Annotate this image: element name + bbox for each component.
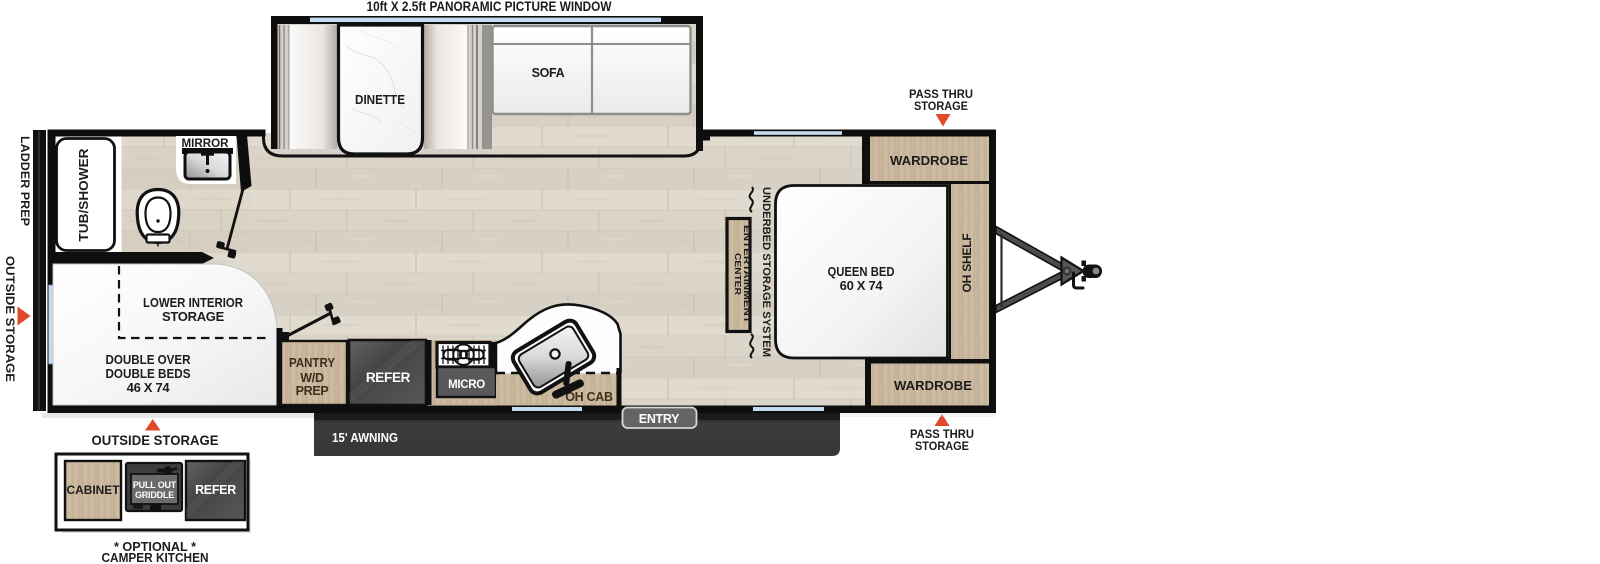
svg-text:15' AWNING: 15' AWNING xyxy=(332,430,398,445)
svg-text:SOFA: SOFA xyxy=(532,66,565,80)
svg-text:CAMPER KITCHEN: CAMPER KITCHEN xyxy=(102,550,209,564)
svg-text:OH SHELF: OH SHELF xyxy=(960,233,974,292)
svg-text:ENTERTAINMENT: ENTERTAINMENT xyxy=(742,225,751,323)
svg-text:PASS THRU: PASS THRU xyxy=(910,429,974,441)
svg-text:UNDERBED STORAGE SYSTEM: UNDERBED STORAGE SYSTEM xyxy=(760,187,772,357)
svg-text:PREP: PREP xyxy=(296,384,329,398)
svg-text:MICRO: MICRO xyxy=(448,379,485,391)
svg-text:LOWER INTERIOR: LOWER INTERIOR xyxy=(143,295,244,310)
svg-text:PANTRY: PANTRY xyxy=(289,356,336,370)
svg-text:QUEEN BED: QUEEN BED xyxy=(828,264,895,279)
svg-text:TUB/SHOWER: TUB/SHOWER xyxy=(76,148,91,242)
svg-text:REFER: REFER xyxy=(195,483,236,497)
svg-text:STORAGE: STORAGE xyxy=(914,101,968,113)
svg-text:46 X 74: 46 X 74 xyxy=(127,380,171,395)
svg-text:STORAGE: STORAGE xyxy=(162,309,225,324)
svg-text:STORAGE: STORAGE xyxy=(915,441,969,453)
svg-text:CENTER: CENTER xyxy=(733,253,742,295)
svg-text:OH CAB: OH CAB xyxy=(565,390,613,404)
svg-text:ENTRY: ENTRY xyxy=(639,412,680,426)
svg-text:GRIDDLE: GRIDDLE xyxy=(135,490,174,500)
svg-text:PULL OUT: PULL OUT xyxy=(133,480,177,490)
svg-text:WARDROBE: WARDROBE xyxy=(894,379,972,393)
svg-text:CABINET: CABINET xyxy=(67,483,121,497)
svg-text:DOUBLE OVER: DOUBLE OVER xyxy=(106,352,192,367)
svg-text:REFER: REFER xyxy=(366,370,411,385)
svg-text:OUTSIDE STORAGE: OUTSIDE STORAGE xyxy=(3,256,15,382)
svg-text:DOUBLE BEDS: DOUBLE BEDS xyxy=(106,366,191,381)
svg-text:DINETTE: DINETTE xyxy=(355,93,405,107)
svg-text:PASS THRU: PASS THRU xyxy=(909,89,973,101)
svg-text:W/D: W/D xyxy=(300,371,324,385)
svg-text:LADDER PREP: LADDER PREP xyxy=(18,136,30,226)
svg-text:60 X 74: 60 X 74 xyxy=(840,278,884,293)
svg-text:10ft X 2.5ft PANORAMIC PICTURE: 10ft X 2.5ft PANORAMIC PICTURE WINDOW xyxy=(367,0,612,14)
svg-text:WARDROBE: WARDROBE xyxy=(890,154,968,168)
svg-text:OUTSIDE STORAGE: OUTSIDE STORAGE xyxy=(92,433,219,448)
